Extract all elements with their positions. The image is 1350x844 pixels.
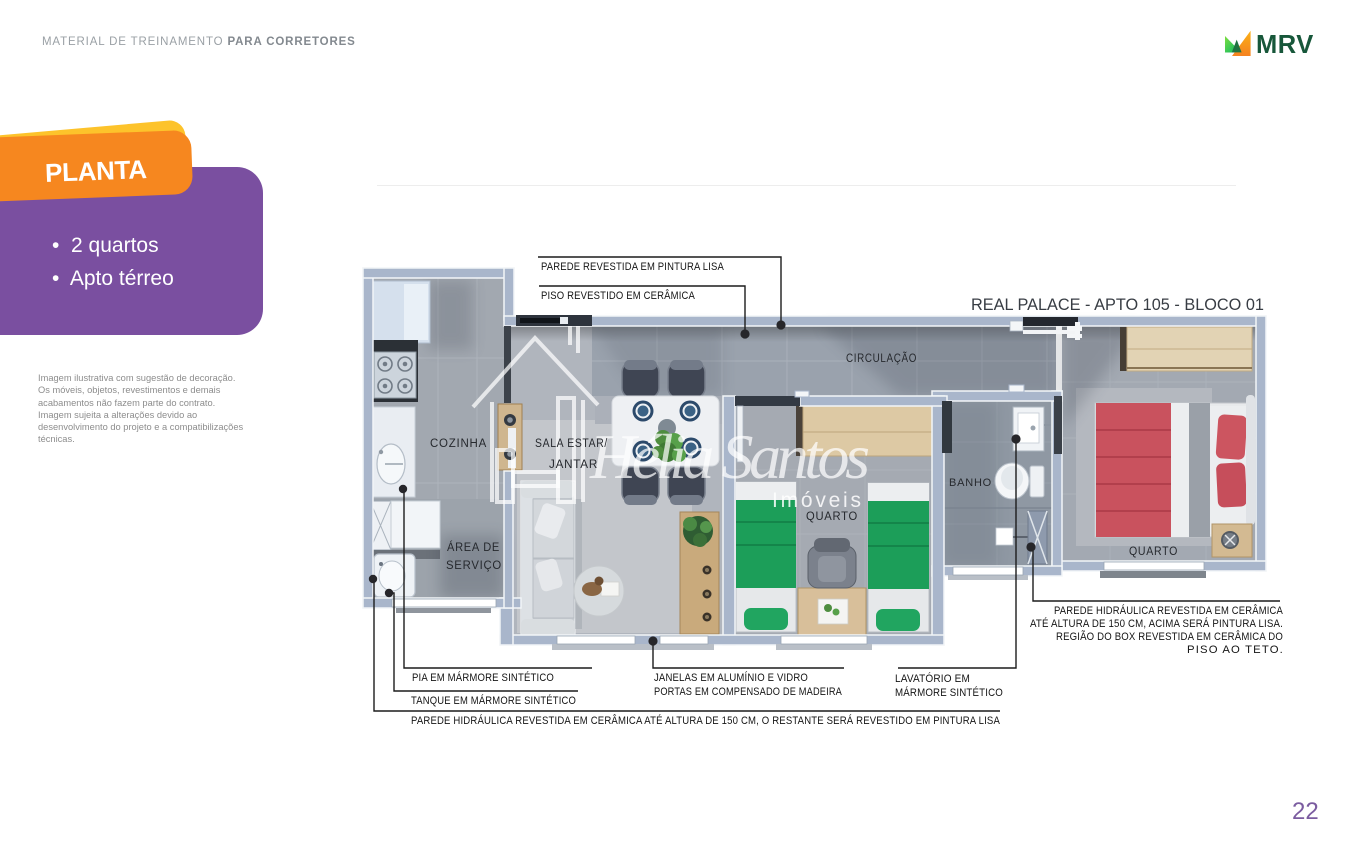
svg-text:PAREDE REVESTIDA EM PINTURA LI: PAREDE REVESTIDA EM PINTURA LISA xyxy=(541,261,724,273)
svg-text:Hélia Santos: Hélia Santos xyxy=(589,421,870,492)
svg-text:MÁRMORE SINTÉTICO: MÁRMORE SINTÉTICO xyxy=(895,686,1003,699)
svg-text:ATÉ ALTURA DE 150 CM, ACIMA SE: ATÉ ALTURA DE 150 CM, ACIMA SERÁ PINTURA… xyxy=(1030,617,1283,630)
svg-text:JANELAS EM ALUMÍNIO E VIDRO: JANELAS EM ALUMÍNIO E VIDRO xyxy=(654,671,808,684)
svg-text:TANQUE EM MÁRMORE SINTÉTICO: TANQUE EM MÁRMORE SINTÉTICO xyxy=(411,694,576,707)
svg-text:JANTAR: JANTAR xyxy=(549,457,598,471)
svg-text:COZINHA: COZINHA xyxy=(430,436,487,450)
svg-text:PISO REVESTIDO EM CERÂMICA: PISO REVESTIDO EM CERÂMICA xyxy=(541,289,695,302)
svg-text:REGIÃO DO BOX REVESTIDA EM CE: REGIÃO DO BOX REVESTIDA EM CERÂMICA DO xyxy=(1056,630,1283,643)
svg-text:REAL PALACE - APTO 105 - BLOCO: REAL PALACE - APTO 105 - BLOCO 01 xyxy=(971,295,1264,314)
svg-text:MRV: MRV xyxy=(1256,31,1314,59)
svg-text:QUARTO: QUARTO xyxy=(806,509,858,523)
svg-text:PAREDE HIDRÁULICA REVESTIDA EM: PAREDE HIDRÁULICA REVESTIDA EM CERÂMICA … xyxy=(411,714,1000,727)
svg-text:PIA EM MÁRMORE SINTÉTICO: PIA EM MÁRMORE SINTÉTICO xyxy=(412,671,554,684)
svg-text:SERVIÇO: SERVIÇO xyxy=(446,558,502,572)
svg-text:ÁREA DE: ÁREA DE xyxy=(447,539,500,554)
svg-text:PORTAS EM COMPENSADO DE MADEIR: PORTAS EM COMPENSADO DE MADEIRA xyxy=(654,686,842,698)
svg-text:PISO AO TETO.: PISO AO TETO. xyxy=(1187,644,1283,656)
svg-text:QUARTO: QUARTO xyxy=(1129,544,1178,558)
svg-text:CIRCULAÇÃO: CIRCULAÇÃO xyxy=(846,351,917,365)
svg-text:PAREDE HIDRÁULICA REVESTIDA EM: PAREDE HIDRÁULICA REVESTIDA EM CERÂMICA xyxy=(1054,604,1283,617)
svg-text:LAVATÓRIO EM: LAVATÓRIO EM xyxy=(895,672,970,685)
svg-text:SALA ESTAR/: SALA ESTAR/ xyxy=(535,436,608,450)
svg-text:BANHO: BANHO xyxy=(949,477,992,489)
